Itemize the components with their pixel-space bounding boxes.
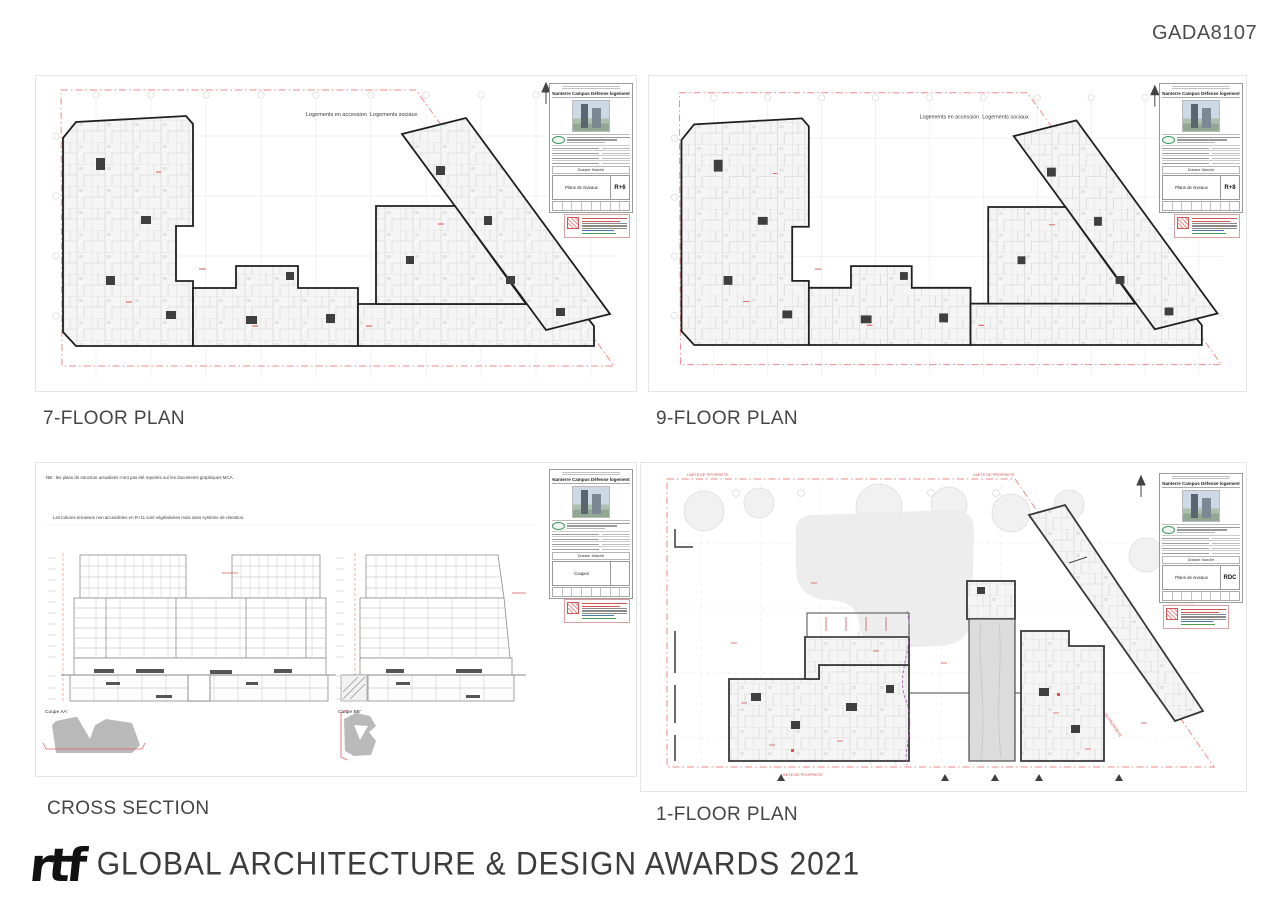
legend-hatch-swatch bbox=[567, 217, 579, 229]
footer: rtf GLOBAL ARCHITECTURE & DESIGN AWARDS … bbox=[30, 845, 860, 885]
limite-label-2: LIMITE DE PROPRIETE bbox=[973, 473, 1015, 477]
caption-section: CROSS SECTION bbox=[47, 798, 210, 820]
section-note-1: NB : les plans de structure actualisés n… bbox=[46, 475, 234, 480]
firm-row bbox=[552, 134, 630, 145]
project-title: Nanterre Campus Défense logement bbox=[552, 476, 630, 484]
dossier-label: Dossier Marché bbox=[1162, 166, 1240, 174]
plan-legend bbox=[564, 599, 630, 623]
caption-plan7: 7-FLOOR PLAN bbox=[43, 408, 185, 430]
label-coupe-aa: Coupe AA' bbox=[45, 709, 68, 715]
dossier-label: Dossier Marché bbox=[552, 552, 630, 560]
level-code: R+8 bbox=[1220, 176, 1239, 199]
title-block: Nanterre Campus Défense logement Dossier… bbox=[1159, 473, 1243, 603]
submission-code: GADA8107 bbox=[1152, 22, 1257, 45]
legend-hatch-swatch bbox=[1177, 217, 1189, 229]
award-title: GLOBAL ARCHITECTURE & DESIGN AWARDS 2021 bbox=[97, 847, 861, 884]
firm-logo-icon bbox=[552, 522, 565, 530]
plan1-drawing: LIMITE DE PROPRIETE LIMITE DE PROPRIETE … bbox=[641, 463, 1246, 791]
project-photo bbox=[1182, 100, 1220, 132]
rtf-logo: rtf bbox=[28, 845, 91, 885]
central-court bbox=[969, 619, 1015, 761]
title-block: Nanterre Campus Défense logement Dossier… bbox=[549, 83, 633, 213]
firm-logo-icon bbox=[1162, 526, 1175, 534]
legend-hatch-swatch bbox=[567, 602, 579, 614]
firm-logo-icon bbox=[552, 136, 565, 144]
sheet-section: NB : les plans de structure actualisés n… bbox=[35, 462, 637, 777]
doc-type: Plans de niveaux bbox=[1163, 176, 1220, 199]
level-code: R+6 bbox=[610, 176, 629, 199]
level-code bbox=[610, 562, 629, 585]
entrance-arrows bbox=[777, 774, 1123, 781]
plan7-drawing bbox=[36, 76, 636, 391]
firm-logo-icon bbox=[1162, 136, 1175, 144]
dossier-label: Dossier Marché bbox=[1162, 556, 1240, 564]
sheet-plan7: Nanterre Campus Défense logement Dossier… bbox=[35, 75, 637, 392]
sheet-plan9: Nanterre Campus Défense logement Dossier… bbox=[648, 75, 1247, 392]
doc-type: Plans de niveaux bbox=[553, 176, 610, 199]
ramp-hatch bbox=[341, 675, 367, 701]
project-photo bbox=[1182, 490, 1220, 522]
limite-label-3: LIMITE DE PROPRIETE bbox=[781, 773, 823, 777]
project-photo bbox=[572, 100, 610, 132]
dossier-label: Dossier Marché bbox=[552, 166, 630, 174]
plan9-drawing bbox=[649, 76, 1246, 391]
limite-label-1: LIMITE DE PROPRIETE bbox=[687, 473, 729, 477]
caption-plan1: 1-FLOOR PLAN bbox=[656, 804, 798, 826]
level-code: RDC bbox=[1220, 566, 1239, 589]
titleblock-microtext bbox=[552, 86, 630, 89]
plan-legend bbox=[1174, 214, 1240, 238]
project-photo bbox=[572, 486, 610, 518]
presentation-board: Logements en accession Logements sociaux… bbox=[0, 0, 1273, 900]
project-title: Nanterre Campus Défense logement bbox=[552, 90, 630, 98]
doc-type: Coupes bbox=[553, 562, 610, 585]
title-block: Nanterre Campus Défense logement Dossier… bbox=[1159, 83, 1243, 213]
titleblock-fields bbox=[552, 145, 630, 165]
sheet-plan1: LIMITE DE PROPRIETE LIMITE DE PROPRIETE … bbox=[640, 462, 1247, 792]
section-drawing: NB : les plans de structure actualisés n… bbox=[36, 463, 636, 776]
keyplan-BB bbox=[341, 710, 376, 760]
plan-legend bbox=[1163, 605, 1229, 629]
landscape-path bbox=[796, 510, 974, 648]
project-title: Nanterre Campus Défense logement bbox=[1162, 90, 1240, 98]
section-BB bbox=[341, 555, 526, 701]
doc-type: Plans de niveaux bbox=[1163, 566, 1220, 589]
site-walls bbox=[675, 529, 693, 761]
plan-legend bbox=[564, 214, 630, 238]
north-arrow-icon bbox=[1137, 476, 1145, 497]
section-note-2: Les toitures terrasses non accessibles e… bbox=[53, 515, 244, 520]
revision-cells bbox=[552, 201, 630, 211]
legend-hatch-swatch bbox=[1166, 608, 1178, 620]
title-block: Nanterre Campus Défense logement Dossier… bbox=[549, 469, 633, 599]
project-title: Nanterre Campus Défense logement bbox=[1162, 480, 1240, 488]
caption-plan9: 9-FLOOR PLAN bbox=[656, 408, 798, 430]
keyplan-AA bbox=[43, 715, 145, 753]
section-AA bbox=[61, 555, 336, 701]
